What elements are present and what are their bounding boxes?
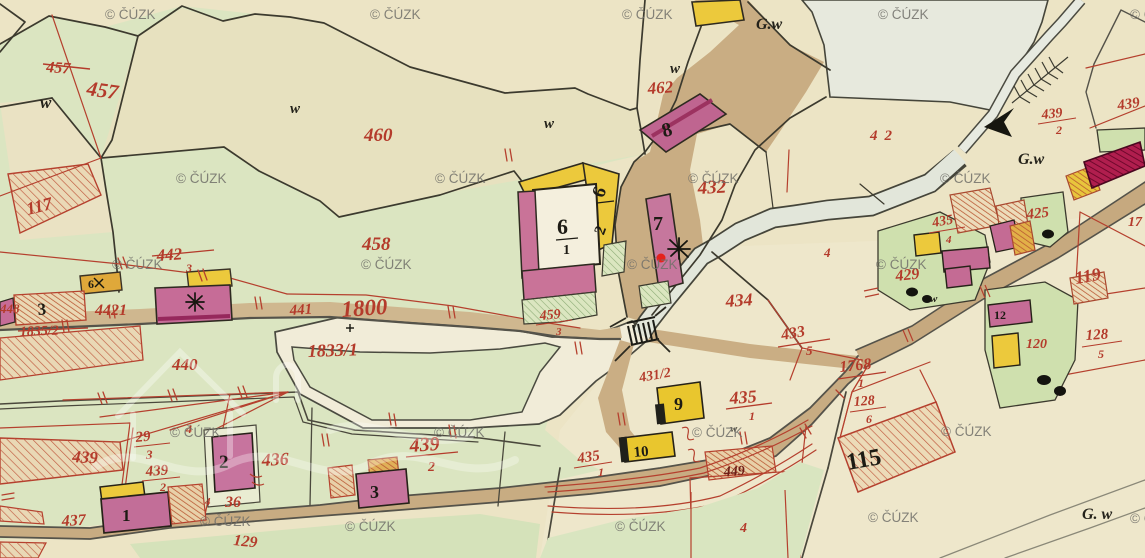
- svg-text:128: 128: [853, 394, 875, 410]
- svg-text:36: 36: [224, 494, 241, 511]
- svg-text:1: 1: [122, 506, 131, 525]
- svg-text:3: 3: [37, 299, 47, 319]
- svg-text:© ČÚZK: © ČÚZK: [622, 7, 672, 22]
- svg-text:5: 5: [806, 343, 813, 358]
- svg-text:© ČÚZK: © ČÚZK: [688, 171, 738, 186]
- svg-text:© ČÚZK: © ČÚZK: [170, 425, 220, 440]
- svg-text:1: 1: [858, 376, 864, 390]
- svg-text:6: 6: [88, 277, 94, 291]
- svg-text:w: w: [544, 116, 555, 132]
- svg-text:458: 458: [361, 234, 391, 255]
- svg-text:441: 441: [288, 301, 313, 319]
- svg-text:4: 4: [204, 496, 211, 508]
- svg-text:w: w: [290, 101, 301, 117]
- svg-text:2: 2: [159, 480, 166, 494]
- svg-text:4421: 4421: [94, 302, 127, 319]
- svg-text:© ČÚZK: © ČÚZK: [434, 425, 484, 440]
- svg-text:4: 4: [823, 245, 831, 260]
- svg-text:457: 457: [84, 76, 121, 104]
- svg-text:1800: 1800: [341, 294, 389, 322]
- svg-text:6: 6: [557, 214, 568, 239]
- svg-text:6: 6: [866, 412, 872, 426]
- svg-text:© ČÚZK: © ČÚZK: [876, 257, 926, 272]
- svg-text:© Č: © Č: [1130, 511, 1145, 526]
- svg-text:10: 10: [633, 444, 649, 461]
- svg-text:3: 3: [185, 261, 192, 275]
- svg-text:© ČÚZK: © ČÚZK: [345, 519, 395, 534]
- svg-text:17: 17: [1128, 215, 1143, 230]
- svg-text:439: 439: [1115, 95, 1141, 114]
- svg-text:w: w: [40, 93, 52, 112]
- svg-text:9: 9: [674, 394, 683, 414]
- svg-text:© ČÚZK: © ČÚZK: [941, 424, 991, 439]
- svg-text:449: 449: [722, 464, 745, 480]
- svg-text:3: 3: [555, 326, 562, 338]
- svg-text:© ČÚZK: © ČÚZK: [940, 171, 990, 186]
- svg-text:128: 128: [1085, 326, 1109, 344]
- svg-text:G. w: G. w: [1082, 506, 1113, 523]
- svg-text:1768: 1768: [839, 356, 873, 376]
- svg-text:7: 7: [653, 213, 663, 235]
- svg-text:1: 1: [598, 465, 604, 479]
- svg-text:4: 4: [739, 521, 747, 536]
- svg-text:462: 462: [646, 77, 674, 98]
- svg-text:435: 435: [728, 386, 757, 408]
- svg-text:© ČÚZK: © ČÚZK: [370, 7, 420, 22]
- svg-text:4: 4: [945, 234, 952, 246]
- svg-text:434: 434: [724, 289, 753, 311]
- svg-text:460: 460: [363, 125, 393, 146]
- svg-text:3: 3: [370, 482, 379, 502]
- svg-text:© ČÚZK: © ČÚZK: [105, 7, 155, 22]
- svg-text:437: 437: [60, 512, 87, 530]
- svg-text:5: 5: [1098, 347, 1104, 361]
- svg-text:© ČÚZK: © ČÚZK: [878, 7, 928, 22]
- svg-text:© ČÚZK: © ČÚZK: [361, 257, 411, 272]
- svg-text:G.w: G.w: [1018, 151, 1045, 168]
- svg-text:1835/2: 1835/2: [20, 324, 59, 340]
- svg-text:w: w: [930, 293, 938, 305]
- svg-text:© ČÚZK: © ČÚZK: [200, 514, 250, 529]
- svg-text:© ČÚZK: © ČÚZK: [627, 257, 677, 272]
- svg-text:© ČÚZK: © ČÚZK: [435, 171, 485, 186]
- svg-text:G.w: G.w: [756, 16, 783, 33]
- svg-text:2: 2: [1055, 123, 1062, 137]
- svg-text:448: 448: [0, 301, 20, 316]
- svg-text:1: 1: [749, 409, 755, 423]
- svg-text:© ČÚZK: © ČÚZK: [112, 257, 162, 272]
- svg-text:© ČÚZK: © ČÚZK: [176, 171, 226, 186]
- svg-text:29: 29: [134, 428, 152, 446]
- svg-text:1: 1: [563, 243, 570, 258]
- svg-text:© Č: © Č: [1130, 7, 1145, 22]
- svg-text:42: 42: [869, 128, 899, 144]
- svg-text:© ČÚZK: © ČÚZK: [615, 519, 665, 534]
- svg-text:1833/1: 1833/1: [307, 339, 358, 361]
- svg-text:© ČÚZK: © ČÚZK: [692, 425, 742, 440]
- svg-text:457: 457: [45, 59, 72, 78]
- svg-text:425: 425: [1025, 205, 1051, 223]
- svg-text:w: w: [670, 61, 681, 77]
- svg-text:120: 120: [1026, 337, 1047, 352]
- svg-text:© ČÚZK: © ČÚZK: [868, 510, 918, 525]
- svg-text:129: 129: [233, 532, 259, 551]
- svg-text:12: 12: [994, 308, 1006, 322]
